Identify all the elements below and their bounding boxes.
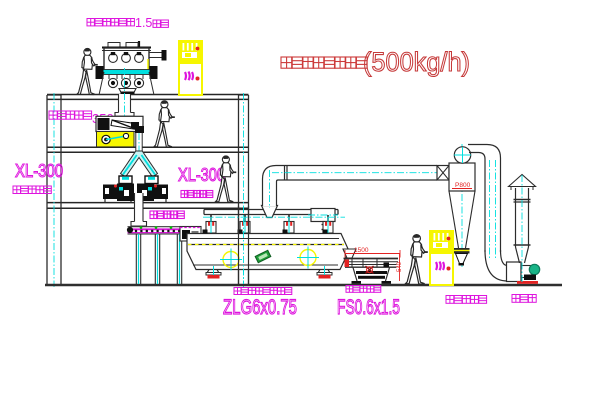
svg-text:FS0.6x1.5: FS0.6x1.5: [337, 296, 400, 319]
svg-text:1500: 1500: [354, 247, 369, 254]
svg-text:P800: P800: [455, 182, 471, 189]
svg-text:XL-300: XL-300: [178, 165, 225, 185]
svg-text:(500kg/h): (500kg/h): [363, 47, 470, 77]
svg-text:540: 540: [397, 261, 403, 272]
svg-text:ZLG6x0.75: ZLG6x0.75: [223, 296, 297, 319]
svg-text:XL-300: XL-300: [15, 161, 63, 181]
svg-text:1.5: 1.5: [135, 16, 152, 30]
